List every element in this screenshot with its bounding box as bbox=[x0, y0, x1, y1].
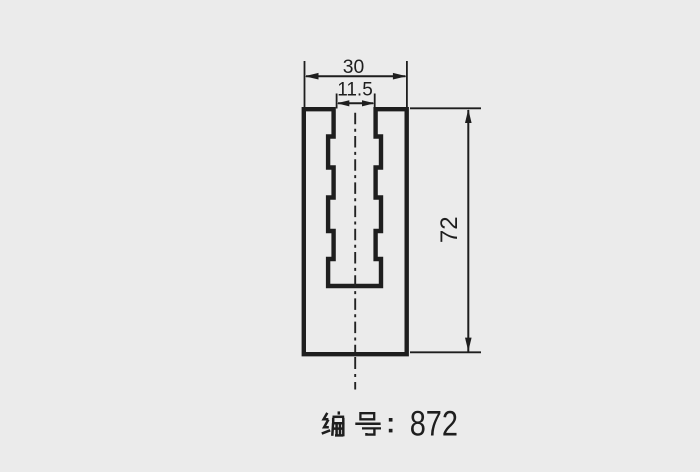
svg-text:30: 30 bbox=[343, 57, 365, 78]
svg-text:872: 872 bbox=[410, 405, 458, 444]
svg-text:11.5: 11.5 bbox=[337, 80, 373, 101]
svg-text:72: 72 bbox=[436, 216, 463, 243]
